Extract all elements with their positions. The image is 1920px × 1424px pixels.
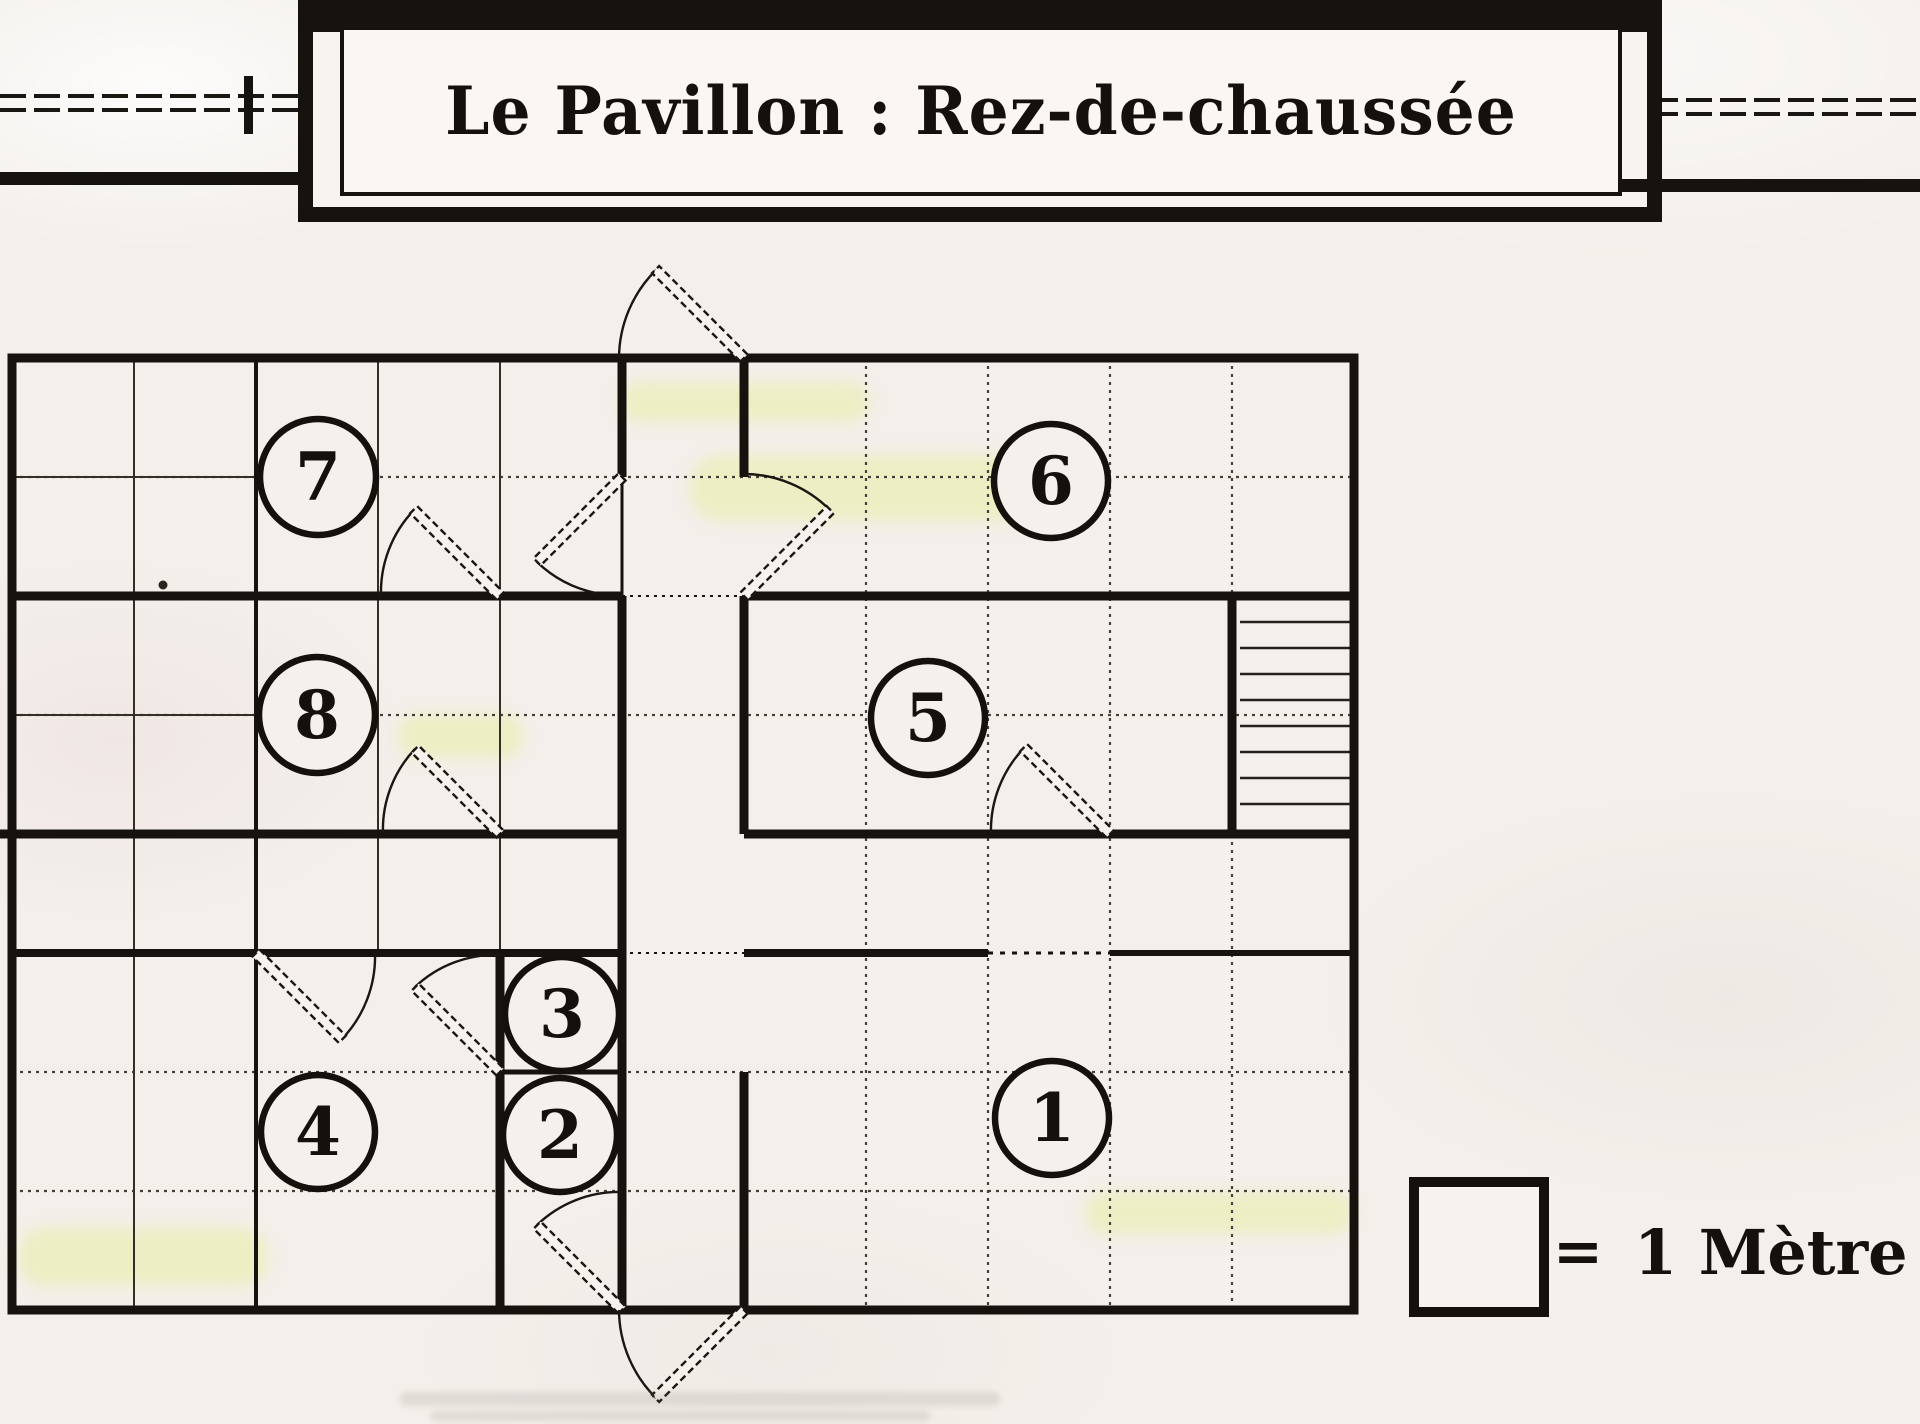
bleed-through-text-line [430,1411,930,1421]
right-double-rule-top [1652,98,1920,102]
door-front [619,266,748,361]
door-room4 [252,949,375,1042]
room-number: 3 [539,975,585,1053]
ink-speck [159,581,168,590]
door-room7 [381,506,504,599]
door-room3 [412,955,504,1076]
room-marker-1: 1 [995,1061,1109,1175]
room-number: 6 [1028,442,1074,520]
door-hall-left [534,473,626,593]
room-number: 2 [537,1096,583,1174]
staircase [1240,622,1352,804]
door-room8 [383,746,504,838]
left-thick-rule [0,172,312,185]
left-rule-end-cap [244,76,253,134]
legend-equals: = [1553,1217,1603,1287]
legend-label: 1 Mètre [1634,1216,1908,1289]
room-marker-7: 7 [260,419,376,535]
room-marker-6: 6 [994,424,1108,538]
room-number: 8 [294,676,340,754]
title-inner-frame: Le Pavillon : Rez-de-chaussée [340,26,1622,196]
room-marker-3: 3 [505,957,619,1071]
left-double-rule-bottom [0,108,298,112]
right-double-rule-bottom [1652,112,1920,116]
room-marker-5: 5 [871,661,985,775]
bleed-through-text-line [400,1392,1000,1406]
room-marker-2: 2 [503,1078,617,1192]
legend-square [1414,1182,1544,1312]
right-thick-rule [1622,179,1920,192]
room-number: 1 [1029,1079,1075,1157]
scanned-floor-plan-page: 7 8 6 5 3 2 4 [0,0,1920,1424]
room-number: 7 [295,438,341,516]
page-title: Le Pavillon : Rez-de-chaussée [445,72,1517,150]
door-room2 [534,1192,626,1314]
room-marker-4: 4 [261,1075,375,1189]
room-marker-8: 8 [259,657,375,773]
interior-walls [0,358,1354,1310]
door-room5 [991,744,1114,837]
room-number: 4 [295,1093,341,1171]
room-number: 5 [905,679,951,757]
legend: = 1 Mètre [1414,1182,1908,1312]
door-back [619,1306,748,1401]
left-double-rule-top [0,94,298,98]
